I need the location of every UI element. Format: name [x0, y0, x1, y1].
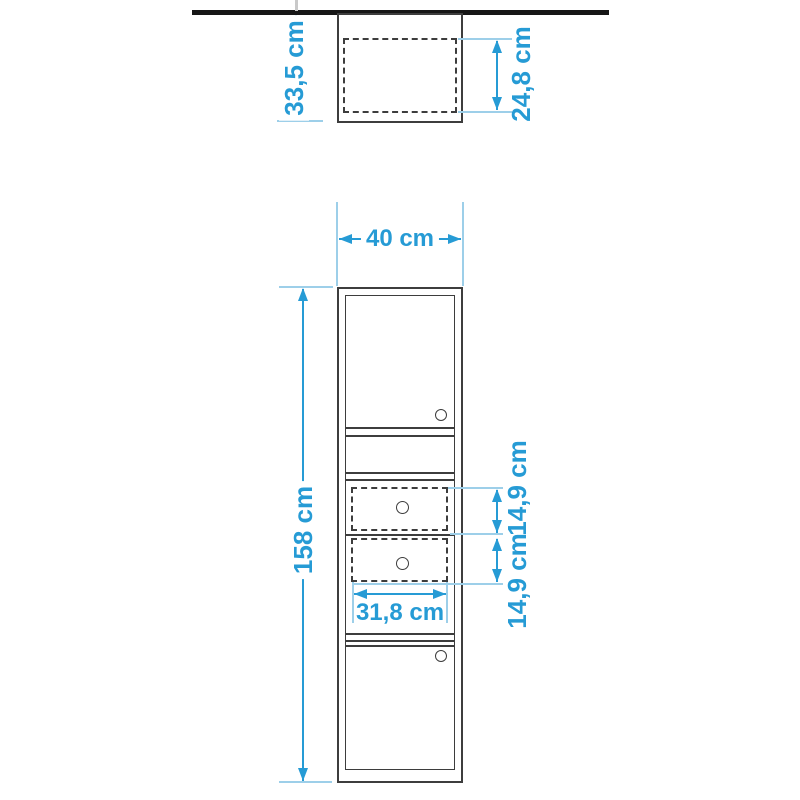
width-dimension-label: 40 cm [361, 225, 439, 253]
arrowhead-left-icon [339, 234, 352, 244]
drawer-width-extension-line-right [446, 582, 448, 623]
dimension-line-stub [295, 0, 298, 11]
lower-door-top-edge [345, 645, 455, 647]
lower-drawer-height-label: 14,9 cm [504, 533, 530, 628]
drawer-extension-line-middle [450, 533, 503, 535]
height-dimension-label: 158 cm [288, 481, 318, 579]
height-extension-line-bottom [279, 781, 332, 783]
lower-drawer-knob-icon [396, 557, 409, 570]
shelf-board-line [345, 479, 455, 481]
arrowhead-up-icon [492, 40, 502, 53]
shelf-board-line [345, 640, 455, 642]
drawer-width-label: 31,8 cm [356, 601, 444, 625]
recess-extension-line-bottom [458, 111, 512, 113]
upper-door-knob-icon [435, 409, 447, 421]
arrowhead-right-icon [433, 589, 446, 599]
drawer-divider-line [345, 534, 455, 536]
arrowhead-down-icon [298, 768, 308, 781]
arrowhead-up-icon [298, 288, 308, 301]
top-view-recess-dashed-outline [343, 38, 457, 113]
width-extension-line-right [462, 202, 464, 286]
cabinet-dimension-diagram: 33,5 cm 24,8 cm 40 cm 158 cm 14,9 cm 14 [0, 0, 800, 800]
lower-drawer-extension-line-bottom [352, 583, 503, 585]
arrowhead-up-icon [492, 538, 502, 551]
arrowhead-down-icon [492, 569, 502, 582]
shelf-board-line [345, 472, 455, 474]
upper-drawer-height-label: 14,9 cm [504, 440, 530, 535]
front-view-inner-outline [345, 295, 455, 770]
lower-door-knob-icon [435, 650, 447, 662]
recess-extension-line-top [458, 38, 512, 40]
arrowhead-left-icon [354, 589, 367, 599]
upper-drawer-knob-icon [396, 501, 409, 514]
width-extension-line-left [336, 202, 338, 286]
arrowhead-up-icon [492, 489, 502, 502]
arrowhead-down-icon [492, 97, 502, 110]
arrowhead-down-icon [492, 520, 502, 533]
shelf-board-line [345, 633, 455, 635]
arrowhead-right-icon [448, 234, 461, 244]
upper-door-bottom-edge [345, 427, 455, 429]
depth-dimension-label: 33,5 cm [279, 15, 309, 120]
recess-dimension-label: 24,8 cm [508, 26, 534, 121]
shelf-board-line [345, 435, 455, 437]
